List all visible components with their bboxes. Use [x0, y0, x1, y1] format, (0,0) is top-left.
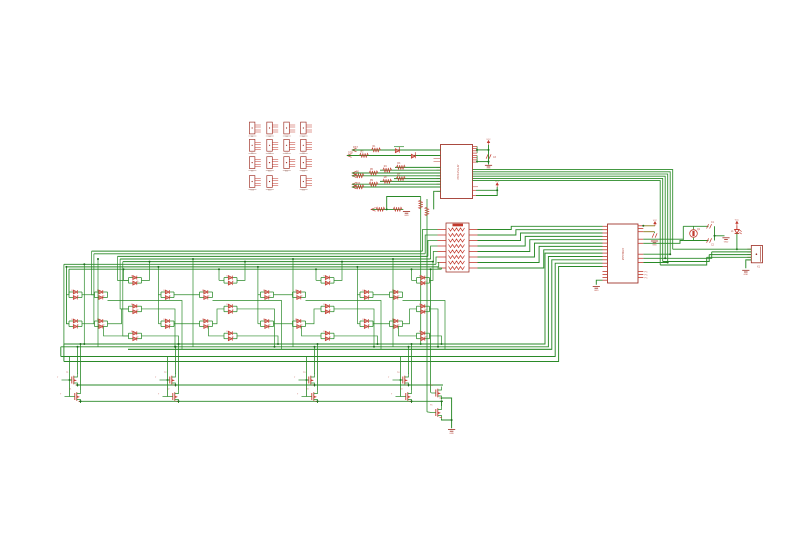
svg-text:R10: R10 — [356, 183, 361, 185]
svg-text:GND: GND — [404, 215, 409, 217]
svg-text:PC: PC — [645, 272, 648, 274]
svg-text:PC: PC — [645, 278, 648, 280]
svg-text:GND: GND — [652, 245, 657, 247]
svg-text:VCC: VCC — [486, 139, 491, 141]
svg-text:GND: GND — [724, 241, 729, 243]
svg-text:PC: PC — [645, 275, 648, 277]
svg-text:VCC: VCC — [735, 220, 740, 222]
svg-text:GND: GND — [594, 290, 599, 292]
svg-text:GND: GND — [449, 433, 454, 435]
svg-text:GND: GND — [743, 274, 748, 276]
svg-text:ATTINY2313: ATTINY2313 — [456, 165, 460, 180]
svg-text:VCC: VCC — [495, 181, 500, 183]
svg-text:VCC: VCC — [653, 220, 658, 222]
svg-text:ATMEGA8: ATMEGA8 — [621, 248, 625, 261]
svg-text:RST: RST — [353, 146, 358, 149]
svg-text:DTR: DTR — [348, 151, 353, 154]
